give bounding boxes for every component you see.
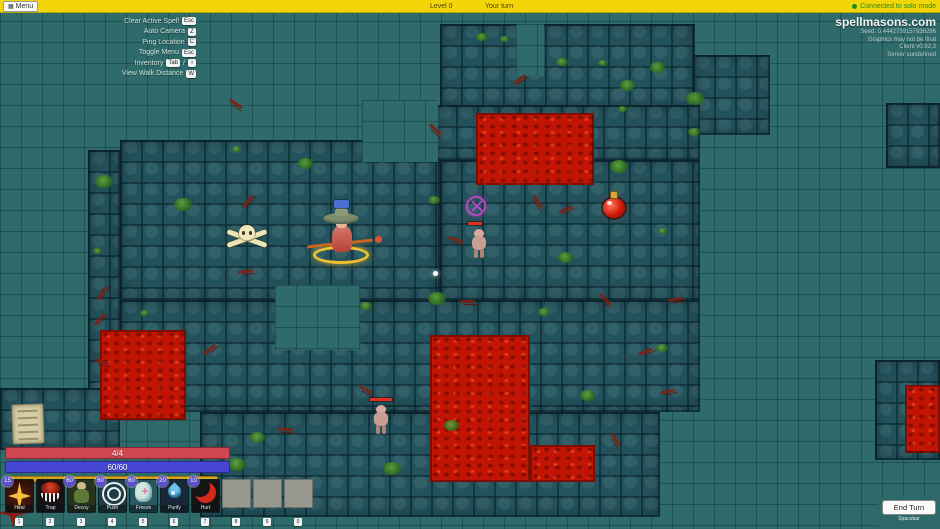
skull-bones-decoration xyxy=(224,222,270,256)
hotkey-separator: / xyxy=(183,60,185,67)
hotkey-label: Inventory xyxy=(135,60,164,67)
spell-card-push[interactable]: 60Push xyxy=(98,479,127,513)
info-panel: spellmasons.com Seed: 0.4442739157936296… xyxy=(835,15,936,59)
status-dot-icon xyxy=(852,4,857,9)
floor-tiles xyxy=(693,55,770,135)
vine-decoration xyxy=(460,300,475,303)
player-chip xyxy=(334,200,349,208)
menu-button[interactable]: ▦ Menu xyxy=(3,1,38,12)
moss-decoration xyxy=(580,390,595,401)
hotkey-label: Auto Camera xyxy=(144,28,185,35)
moss-decoration xyxy=(93,248,102,254)
moss-decoration xyxy=(250,432,265,443)
mana-cost-badge: 20 xyxy=(157,476,168,487)
toolbar-key-badge: 2 xyxy=(46,518,54,526)
moss-decoration xyxy=(686,92,704,105)
end-turn-button[interactable]: End Turn xyxy=(882,500,936,515)
empty-spell-slot[interactable] xyxy=(222,479,251,508)
hotkey-label: Ping Location xyxy=(142,39,184,46)
moss-decoration xyxy=(656,344,668,352)
top-bar: ▦ Menu Level 0 Your turn Connected to so… xyxy=(0,0,940,13)
moss-decoration xyxy=(538,308,550,316)
moss-decoration xyxy=(618,106,627,112)
hotkey-row: Ping LocationC xyxy=(0,38,200,46)
floor-tiles xyxy=(886,103,940,168)
spell-card-trap[interactable]: Trap xyxy=(36,479,65,513)
no-cast-marker-icon xyxy=(466,196,486,216)
moss-decoration xyxy=(650,62,665,73)
connection-status: Connected to solo mode xyxy=(852,3,936,10)
moss-decoration xyxy=(610,160,628,173)
lava-pool xyxy=(905,385,940,453)
toolbar-key-badge: 0 xyxy=(294,518,302,526)
enemy-leg2 xyxy=(382,425,386,434)
build-info-lines: Seed: 0.4442739157936296Graphics may not… xyxy=(835,29,936,59)
hotkey-key-badge: i xyxy=(188,59,196,67)
hotkey-label: Clear Active Spell xyxy=(124,18,179,25)
enemy-body xyxy=(374,412,388,426)
void-gap xyxy=(516,24,544,76)
moss-decoration xyxy=(428,196,440,204)
vine-decoration xyxy=(228,98,242,108)
menu-grid-icon: ▦ xyxy=(8,4,14,10)
hotkey-key-badge: Esc xyxy=(182,17,196,25)
toolbar-key-badge: 6 xyxy=(170,518,178,526)
level-label: Level 0 xyxy=(430,3,453,10)
enemy-unit[interactable] xyxy=(466,222,492,260)
player-dome xyxy=(335,207,348,216)
mana-value: 60/60 xyxy=(107,463,127,472)
toolbar-key-badge: 3 xyxy=(77,518,85,526)
build-info-line: Graphics may not be final xyxy=(835,37,936,45)
enemy-health-bar xyxy=(370,398,392,401)
potion-cork xyxy=(610,191,618,199)
spell-card-label: Purify xyxy=(161,505,188,512)
hotkey-row: Clear Active SpellEsc xyxy=(0,17,200,25)
moss-decoration xyxy=(620,80,635,91)
toolbar-key-badge: 4 xyxy=(108,518,116,526)
lava-pool xyxy=(476,113,594,185)
moss-decoration xyxy=(476,33,488,41)
spell-card-label: Decoy xyxy=(68,505,95,512)
site-title: spellmasons.com xyxy=(835,15,936,29)
hotkey-key-badge: W xyxy=(186,70,196,78)
enemy-leg1 xyxy=(474,249,478,258)
spell-card-label: Heal xyxy=(6,505,33,512)
end-turn-panel: End Turn Spacebar xyxy=(878,497,940,529)
build-info-line: Client v0.92.3 xyxy=(835,44,936,52)
connection-status-text: Connected to solo mode xyxy=(860,3,936,10)
hotkey-key-badge: C xyxy=(188,38,196,46)
turn-label: Your turn xyxy=(485,3,513,10)
spell-card-decoy[interactable]: 60Decoy xyxy=(67,479,96,513)
spell-card-label: Trap xyxy=(37,505,64,512)
moss-decoration xyxy=(95,175,113,188)
moss-decoration xyxy=(444,420,459,431)
player-character[interactable] xyxy=(313,200,373,266)
spell-card-label: Hurt xyxy=(192,505,219,512)
hotkey-row: View Walk DistanceW xyxy=(0,70,200,78)
spell-toolbar: 15Heal1Trap260Decoy360Push460Freeze520Pu… xyxy=(5,479,335,529)
mana-cost-badge: 10 xyxy=(188,476,199,487)
hotkey-list: Clear Active SpellEscAuto CameraZPing Lo… xyxy=(0,17,200,80)
floor-tiles xyxy=(120,300,700,412)
potion-shine xyxy=(607,201,612,205)
hotkey-label: Toggle Menu xyxy=(139,49,179,56)
end-turn-hotkey-label: Spacebar xyxy=(878,516,940,522)
spell-card-freeze[interactable]: 60Freeze xyxy=(129,479,158,513)
void-gap xyxy=(275,285,360,350)
health-bar: 4/4 xyxy=(5,447,230,459)
spell-card-hurt[interactable]: 10Hurt xyxy=(191,479,220,513)
enemy-leg2 xyxy=(480,249,484,258)
empty-spell-slot[interactable] xyxy=(253,479,282,508)
moss-decoration xyxy=(428,292,446,305)
mana-cost-badge: 60 xyxy=(95,476,106,487)
toolbar-key-badge: 7 xyxy=(201,518,209,526)
moss-decoration xyxy=(298,158,313,169)
spell-card-label: Push xyxy=(99,505,126,512)
mana-cost-badge: 60 xyxy=(126,476,137,487)
spell-card-heal[interactable]: 15Heal xyxy=(5,479,34,513)
mana-cost-badge: 15 xyxy=(2,476,13,487)
floor-tiles xyxy=(120,140,440,300)
player-robe xyxy=(332,226,352,252)
hotkey-label: View Walk Distance xyxy=(122,70,183,77)
moss-decoration xyxy=(232,146,241,152)
hotkey-key-badge: Esc xyxy=(182,49,196,57)
moss-decoration xyxy=(140,310,149,316)
empty-spell-slot[interactable] xyxy=(284,479,313,508)
health-value: 4/4 xyxy=(112,449,123,458)
skull-icon xyxy=(239,225,255,240)
moss-decoration xyxy=(688,128,700,136)
enemy-body xyxy=(472,236,486,250)
moss-decoration xyxy=(658,228,667,234)
enemy-health-bar xyxy=(468,222,482,225)
menu-button-label: Menu xyxy=(16,2,34,11)
hotkey-key-badge: Z xyxy=(188,28,196,36)
hotkey-key-badge: Tab xyxy=(166,59,180,67)
health-potion-pickup[interactable] xyxy=(603,191,627,218)
hotkey-row: Toggle MenuEsc xyxy=(0,49,200,57)
moss-decoration xyxy=(174,198,192,211)
enemy-leg1 xyxy=(376,425,380,434)
game-window: ▦ Menu Level 0 Your turn Connected to so… xyxy=(0,0,940,529)
build-info-line: Seed: 0.4442739157936296 xyxy=(835,29,936,37)
scroll-pickup[interactable] xyxy=(11,403,44,444)
toolbar-key-badge: 9 xyxy=(263,518,271,526)
lava-pool xyxy=(100,330,186,420)
void-gap xyxy=(362,100,438,162)
moss-decoration xyxy=(558,252,573,263)
toolbar-key-badge: 5 xyxy=(139,518,147,526)
moss-decoration xyxy=(383,462,401,475)
potion-bulb xyxy=(603,198,625,218)
enemy-unit[interactable] xyxy=(368,398,394,436)
toolbar-key-badge: 8 xyxy=(232,518,240,526)
moss-decoration xyxy=(598,60,607,66)
moss-decoration xyxy=(228,458,246,471)
moss-decoration xyxy=(556,58,568,66)
spell-card-label: Freeze xyxy=(130,505,157,512)
build-info-line: Server vundefined xyxy=(835,52,936,60)
spell-card-purify[interactable]: 20Purify xyxy=(160,479,189,513)
mana-bar: 60/60 xyxy=(5,461,230,473)
mana-cost-badge: 60 xyxy=(64,476,75,487)
cursor-dot xyxy=(433,271,438,276)
player-stafftip xyxy=(375,236,382,243)
hotkey-row: InventoryTab/i xyxy=(0,59,200,67)
lava-pool xyxy=(530,445,595,482)
hotkey-row: Auto CameraZ xyxy=(0,28,200,36)
toolbar-key-badge: 1 xyxy=(15,518,23,526)
moss-decoration xyxy=(500,36,509,42)
lava-pool xyxy=(430,335,530,482)
moss-decoration xyxy=(360,302,372,310)
